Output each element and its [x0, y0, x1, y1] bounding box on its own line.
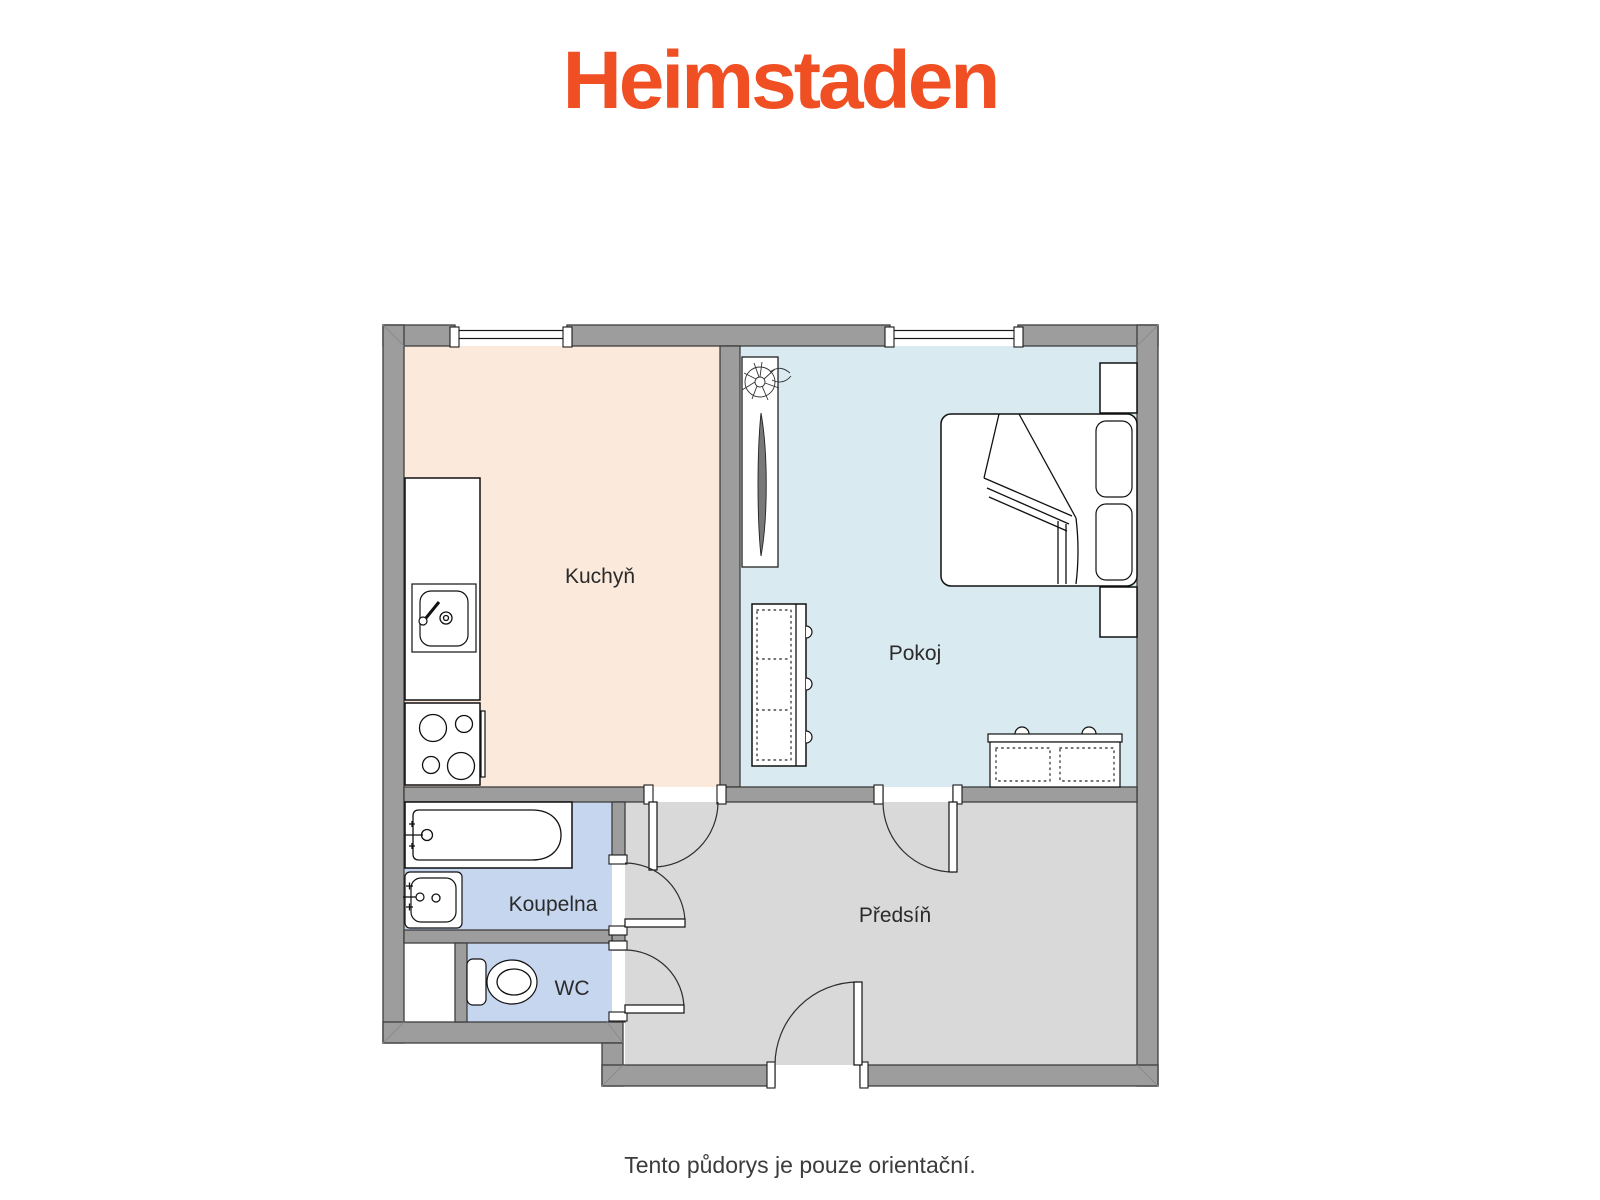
bathroom-label: Koupelna: [509, 893, 598, 916]
pillow: [1096, 421, 1132, 497]
wall: [383, 325, 404, 1043]
wall: [718, 787, 883, 802]
wall: [720, 346, 740, 787]
wall: [860, 1065, 1158, 1086]
washbasin: [403, 872, 462, 928]
floor-plan: Kuchyň Pokoj Koupelna WC Předsíň: [0, 0, 1600, 1200]
wall: [455, 943, 467, 1022]
kitchen-label: Kuchyň: [565, 565, 635, 588]
room-label: Pokoj: [889, 642, 942, 665]
pillow: [1096, 504, 1132, 580]
kitchen-sink: [412, 584, 476, 652]
wall: [953, 787, 1137, 802]
nightstand-top: [1100, 363, 1137, 413]
bed: [941, 414, 1137, 586]
wall: [383, 1022, 623, 1043]
wall: [602, 1065, 775, 1086]
bathtub: [405, 802, 572, 868]
stove: [405, 703, 485, 785]
wall: [1137, 325, 1158, 1086]
toilet: [467, 959, 537, 1005]
room-window: [885, 327, 1023, 347]
wall: [612, 802, 625, 863]
kitchen-window: [450, 327, 572, 347]
hallway-floor: [625, 802, 1137, 1065]
wc-label: WC: [555, 977, 590, 1000]
wall: [404, 787, 652, 802]
wall: [567, 325, 890, 346]
hallway-label: Předsíň: [859, 904, 931, 927]
dresser: [988, 727, 1122, 787]
wardrobe: [752, 604, 812, 766]
wall: [404, 930, 612, 943]
nightstand-bottom: [1100, 587, 1137, 637]
disclaimer-note: Tento půdorys je pouze orientační.: [624, 1152, 976, 1179]
